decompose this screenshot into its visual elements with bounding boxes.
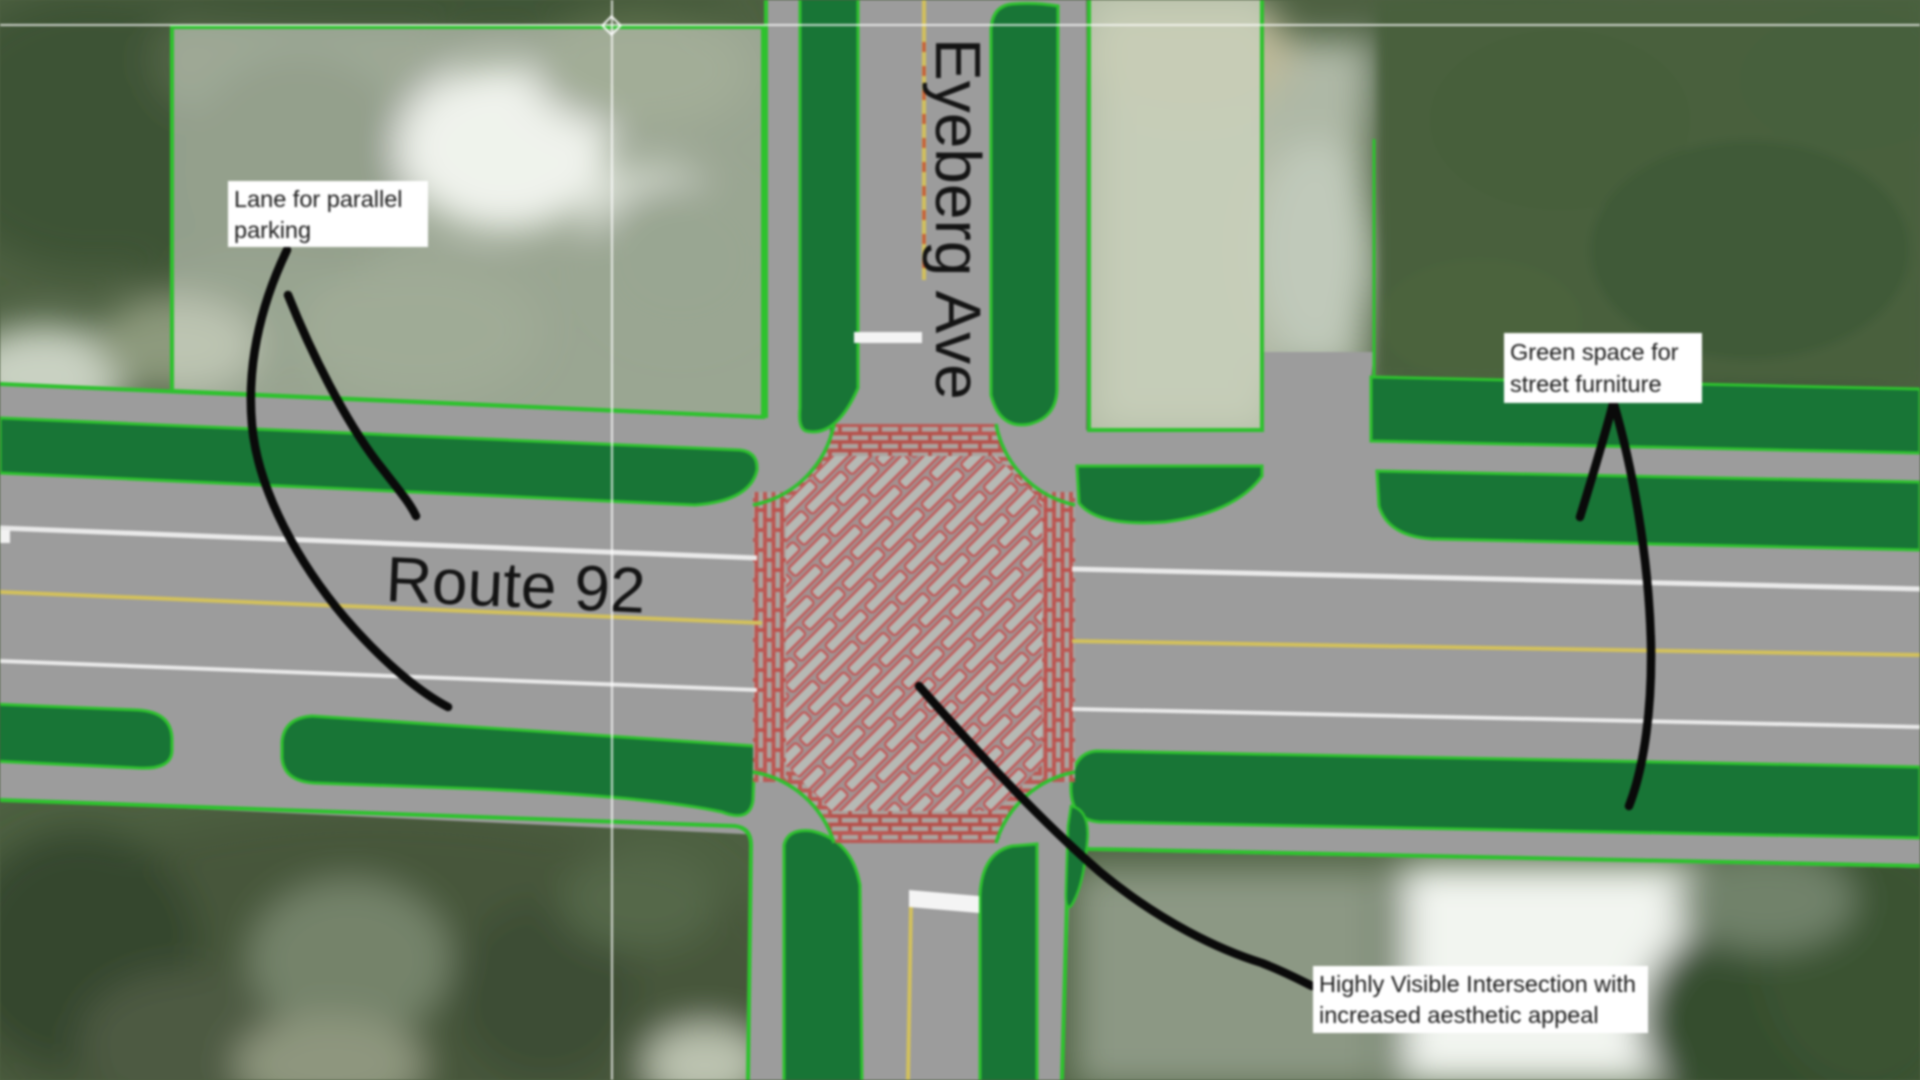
svg-text:Eyeberg Ave: Eyeberg Ave [922,38,994,400]
svg-text:increased aesthetic appeal: increased aesthetic appeal [1319,1002,1599,1028]
svg-text:street furniture: street furniture [1510,371,1662,397]
svg-text:Highly Visible Intersection wi: Highly Visible Intersection with [1319,971,1636,997]
svg-text:Route 92: Route 92 [384,543,647,627]
svg-text:Lane for parallel: Lane for parallel [234,186,403,212]
svg-text:parking: parking [234,217,311,243]
svg-text:Green space for: Green space for [1510,339,1679,365]
